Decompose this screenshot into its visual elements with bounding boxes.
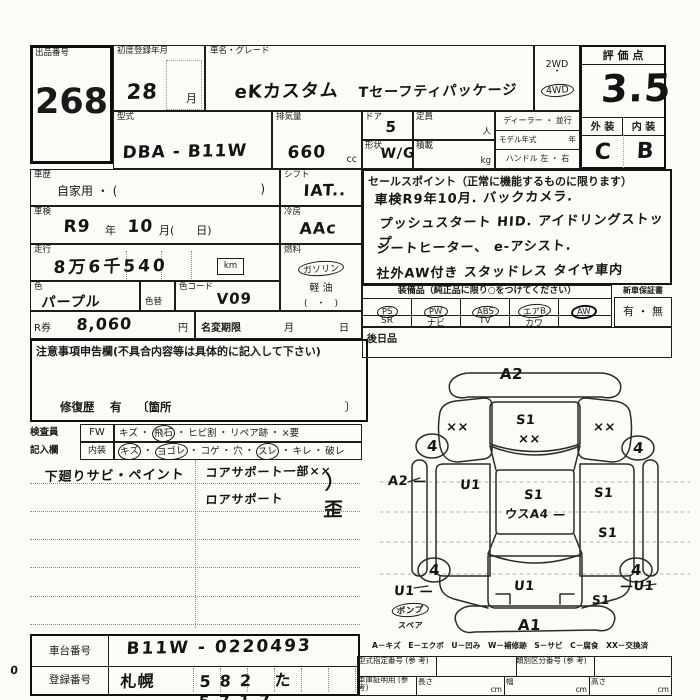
capacity-box: 定員 人 xyxy=(413,111,495,140)
diagram-front-left-xx: ×× xyxy=(445,420,469,435)
shaken-month-value: 10 xyxy=(127,217,154,237)
grade-divider xyxy=(623,134,624,168)
reg-digits-value: 582 た 5717 xyxy=(198,665,360,700)
name-change-label: 名変期限 xyxy=(201,319,241,334)
diagram-hood-xx: ×× xyxy=(517,432,541,447)
mileage-value: 8万6千540 xyxy=(53,251,169,278)
insp2-yabure: 破レ xyxy=(325,446,344,457)
type-designation-label: 型式指定番号 (参 考) xyxy=(358,657,437,677)
exterior-grade-value: C xyxy=(594,140,612,165)
fuel-gasoline-circled: ガソリン xyxy=(298,259,345,277)
notes-underbody: 下廻りサビ・ペイント xyxy=(44,464,185,485)
inspector-fw: FW xyxy=(80,424,114,442)
sales-line-4: 社外AW付き スタッドレス タイヤ車内 xyxy=(376,259,624,282)
first-registration-unit: 月 xyxy=(186,90,197,106)
type-designation-value xyxy=(436,657,517,677)
history-box: 車歴 自家用 ・ ( ) xyxy=(30,169,280,206)
score-box: 評 価 点 3.5 外 装 内 装 C B xyxy=(580,45,666,169)
equipment-row1: PSPWABSエアBAW xyxy=(363,299,611,315)
chassis-reg-table: 車台番号 登録番号 B11W - 0220493 札幌 582 た 5717 xyxy=(30,634,360,696)
name-change-box: 名変期限 月 日 xyxy=(195,311,362,339)
inspector-notes-area: 下廻りサビ・ペイント コアサポート一部×× ロアサポート ）歪 xyxy=(30,460,360,628)
repair-history-label: 修復歴 xyxy=(60,400,95,414)
insp-repair-ato: リペア跡 xyxy=(230,428,282,439)
model-code-value: DBA - B11W xyxy=(122,141,248,163)
width-cell: 幅 cm xyxy=(504,676,590,695)
color-box: 色 パープル xyxy=(30,281,140,311)
interior-grade-value: B xyxy=(636,139,655,164)
repair-history-value: 有 xyxy=(110,400,122,414)
inspector-column-label: 検査員 記入欄 xyxy=(30,424,80,460)
insp-tobiishi-circled: 飛石 xyxy=(151,424,175,443)
diagram-rear-left-u1: U1 — xyxy=(393,584,433,599)
load-unit: kg xyxy=(481,156,491,166)
car-name-label: 車名・グレード xyxy=(210,47,270,56)
fuel-box: 燃料 ガソリン 軽 油 ( ・ ) xyxy=(280,244,362,311)
insp-x-yo: ×要 xyxy=(282,428,299,439)
interior-grade-label: 内 装 xyxy=(622,117,664,136)
door-box: ドア 5 xyxy=(362,111,413,140)
shape-value: W/G xyxy=(380,145,416,162)
color-code-value: V09 xyxy=(216,289,252,308)
length-label: 長さ xyxy=(418,678,433,686)
car-name-value: eKカスタム xyxy=(234,76,340,104)
reg-city-value: 札幌 xyxy=(120,667,155,692)
diagram-spare-note: スペア xyxy=(398,620,424,631)
displacement-unit: cc xyxy=(347,154,357,165)
caution-label: 注意事項申告欄(不具合内容等は具体的に記入して下さい) xyxy=(36,343,321,359)
door-value: 5 xyxy=(385,118,397,136)
model-year-text: モデル年式 xyxy=(499,135,537,144)
warranty-value: 有 ・ 無 xyxy=(614,297,672,327)
r-ticket-unit: 円 xyxy=(178,319,188,334)
capacity-label: 定員 xyxy=(416,113,433,122)
diagram-wheel-rl: 4 xyxy=(428,561,441,579)
inspector-label-1: 検査員 xyxy=(30,424,80,442)
width-label: 幅 xyxy=(506,678,514,686)
diagram-pump-circled: ポンプ xyxy=(391,598,429,617)
repair-history-line: 修復歴 有 〔箇所 xyxy=(60,399,172,415)
r-ticket-label: R券 xyxy=(34,319,51,334)
shift-value: IAT.. xyxy=(303,180,347,200)
color-label: 色 xyxy=(34,283,43,292)
shift-label: シフト xyxy=(284,171,310,180)
first-registration-box: 初度登録年月 28 月 xyxy=(113,45,205,111)
score-label: 評 価 点 xyxy=(582,47,664,65)
notes-distortion: ）歪 xyxy=(323,467,363,522)
damage-legend: A－キズ E－エクボ U－凹み W－補修跡 S－サビ C－腐食 XX－交換済 xyxy=(372,640,672,651)
diagram-rear-right-u1: —U1 xyxy=(619,579,654,594)
garage-cert-label: 車庫証明用 (参 考) xyxy=(358,676,417,695)
mileage-divider xyxy=(191,251,192,279)
dealer-box: ディーラー ・ 並行 モデル年式 年 ハンドル 左 ・ 右 xyxy=(495,111,580,169)
diagram-a2-left: A2 — xyxy=(387,474,427,489)
diagram-left-door-u1: U1 xyxy=(459,478,481,493)
shaken-box: 車検 R9 年 10 月( 日) xyxy=(30,206,280,244)
insp-kizu: キズ xyxy=(119,428,152,439)
model-code-box: 型式 DBA - B11W xyxy=(113,111,272,169)
class-number-value xyxy=(594,657,671,677)
capacity-unit: 人 xyxy=(482,125,491,137)
insp2-ana: 穴 xyxy=(233,446,256,457)
r-ticket-box: R券 8,060 円 xyxy=(30,311,195,339)
exterior-grade-label: 外 装 xyxy=(582,117,623,136)
shaken-year-label: 年 xyxy=(105,222,116,238)
diagram-roof-s1: S1 xyxy=(523,488,544,503)
lot-number-value: 268 xyxy=(33,82,110,122)
model-code-label: 型式 xyxy=(117,113,134,122)
diagram-a1-rear: A1 xyxy=(517,616,542,634)
equipment-label: 装備品（純正品に限り○をつけてください） xyxy=(363,286,611,299)
diagram-wheel-rr: 4 xyxy=(630,561,643,579)
displacement-label: 排気量 xyxy=(276,113,302,122)
load-label: 積載 xyxy=(416,142,433,151)
class-number-label: 類別区分番号 (参 考) xyxy=(516,657,595,677)
shape-label: 形状 xyxy=(365,142,382,151)
inspector-row2: キズヨゴレコゲ穴スレキレ破レ xyxy=(114,442,362,460)
shift-box: シフト IAT.. xyxy=(280,169,362,206)
insp2-kizu-circled: キズ xyxy=(117,442,141,461)
auction-sheet: 出品番号 268 初度登録年月 28 月 車名・グレード eKカスタム Tセーフ… xyxy=(0,0,700,700)
history-close: ) xyxy=(260,182,265,196)
notes-core-support: コアサポート一部×× xyxy=(205,462,332,481)
ac-label: 冷房 xyxy=(284,208,301,217)
inspector-row1: キズ飛石ヒビ割リペア跡×要 xyxy=(114,424,362,442)
diagram-pump-text: ポンプ xyxy=(392,602,429,619)
height-cell: 高さ cm xyxy=(589,676,671,695)
reference-table: 型式指定番号 (参 考) 類別区分番号 (参 考) 車庫証明用 (参 考) 長さ… xyxy=(357,656,672,696)
ruled-divider xyxy=(195,460,196,628)
displacement-value: 660 xyxy=(287,142,327,163)
repair-history-bracket: 〔箇所 xyxy=(137,400,172,414)
later-items-box: 後日品 xyxy=(362,327,672,358)
diagram-front-right-xx: ×× xyxy=(592,420,616,435)
diagram-right-door-s1a: S1 xyxy=(593,486,614,501)
shaken-label: 車検 xyxy=(34,208,51,217)
drivetrain-dot: ・ xyxy=(535,70,579,75)
width-unit: cm xyxy=(576,686,587,694)
drivetrain-4wd-circled: 4WD xyxy=(540,83,574,98)
history-label: 車歴 xyxy=(34,171,51,180)
lot-number-box: 出品番号 268 xyxy=(30,45,113,164)
inspector-label-2: 記入欄 xyxy=(30,442,80,460)
history-value: 自家用 ・ ( xyxy=(57,182,117,199)
name-change-day: 日 xyxy=(339,319,349,334)
length-cell: 長さ cm xyxy=(416,676,505,695)
insp-hibiware: ヒビ割 xyxy=(188,428,230,439)
later-items-label: 後日品 xyxy=(367,330,397,345)
color-code-label: 色コード xyxy=(179,283,213,292)
insp2-yogore-circled: ヨゴレ xyxy=(154,442,188,461)
model-year-label: モデル年式 年 xyxy=(496,131,579,150)
caution-box: 注意事項申告欄(不具合内容等は具体的に記入して下さい) 修復歴 有 〔箇所 〕 xyxy=(30,339,368,422)
dealer-parallel-label: ディーラー ・ 並行 xyxy=(496,112,579,131)
drivetrain-box: 2WD ・ 4WD xyxy=(534,45,580,111)
diagram-wheel-fr: 4 xyxy=(632,439,645,457)
chassis-cell: B11W - 0220493 xyxy=(108,636,358,667)
fuel-label: 燃料 xyxy=(284,246,301,255)
shaken-era-value: R9 xyxy=(63,217,91,237)
displacement-box: 排気量 660 cc xyxy=(272,111,362,169)
name-change-month: 月 xyxy=(284,319,294,334)
diagram-roof-note: ウスA4 — xyxy=(504,505,566,522)
ac-box: 冷房 AAc xyxy=(280,206,362,244)
insp2-kire: キレ xyxy=(293,446,326,457)
sales-line-1: 車検R9年10月. バックカメラ. xyxy=(374,186,574,208)
model-year-unit: 年 xyxy=(569,131,577,149)
diagram-hood-s1: S1 xyxy=(515,413,536,428)
reg-cell: 札幌 582 た 5717 xyxy=(108,666,358,694)
diagram-rear-right-s1: S1 xyxy=(591,593,610,607)
chassis-value: B11W - 0220493 xyxy=(126,636,312,659)
diagram-right-door-s1b: S1 xyxy=(597,526,618,541)
first-registration-label: 初度登録年月 xyxy=(117,47,168,56)
chassis-label: 車台番号 xyxy=(32,636,109,667)
repair-history-bracket-close: 〕 xyxy=(345,399,357,415)
equipment-box: 装備品（純正品に限り○をつけてください） PSPWABSエアBAW SRナビTV… xyxy=(362,285,612,327)
door-label: ドア xyxy=(365,113,382,122)
mileage-box: 走行 8万6千540 km xyxy=(30,244,280,281)
first-registration-value: 28 xyxy=(126,79,159,104)
diagram-rear-center-u1: U1 xyxy=(513,579,535,594)
fuel-paren: ( ・ ) xyxy=(281,296,361,309)
car-diagram: A2 ×× S1 ×× ×× 4 4 4 4 A2 — U1 S1 ウスA4 —… xyxy=(380,360,690,644)
handle-label: ハンドル 左 ・ 右 xyxy=(496,150,579,168)
reg-label: 登録番号 xyxy=(32,666,109,694)
margin-mark: 0 xyxy=(10,664,19,677)
color-change-label: 色替 xyxy=(145,298,162,307)
notes-lower-support: ロアサポート xyxy=(205,490,284,508)
lot-number-label: 出品番号 xyxy=(35,49,69,58)
mileage-label: 走行 xyxy=(34,246,51,255)
ac-value: AAc xyxy=(299,218,337,238)
sales-point-box: セールスポイント（正常に機能するものに限ります） 車検R9年10月. バックカメ… xyxy=(362,169,672,285)
diagram-wheel-fl: 4 xyxy=(426,437,439,455)
color-value: パープル xyxy=(41,291,101,312)
fuel-diesel: 軽 油 xyxy=(281,279,361,294)
load-box: 積載 kg xyxy=(413,140,495,169)
diagram-a2-top: A2 xyxy=(499,365,524,383)
color-change-box: 色替 xyxy=(140,281,175,311)
shape-box: 形状 W/G xyxy=(362,140,413,169)
length-unit: cm xyxy=(491,686,502,694)
shaken-rest-label: 月( 日) xyxy=(159,222,212,238)
height-label: 高さ xyxy=(591,678,606,686)
car-grade-value: Tセーフティパッケージ xyxy=(358,79,518,102)
height-unit: cm xyxy=(658,686,669,694)
warranty-label: 新車保証書 xyxy=(614,285,672,297)
score-value: 3.5 xyxy=(600,66,673,111)
r-ticket-value: 8,060 xyxy=(76,314,133,334)
car-name-box: 車名・グレード eKカスタム Tセーフティパッケージ xyxy=(205,45,534,111)
inspector-interior: 内装 xyxy=(80,442,114,460)
sales-line-3: シートヒーター、 e-アシスト. xyxy=(376,235,572,257)
mileage-unit: km xyxy=(217,258,244,275)
color-code-box: 色コード V09 xyxy=(175,281,280,311)
insp2-koge: コゲ xyxy=(201,446,234,457)
insp2-sure-circled: スレ xyxy=(256,442,280,461)
